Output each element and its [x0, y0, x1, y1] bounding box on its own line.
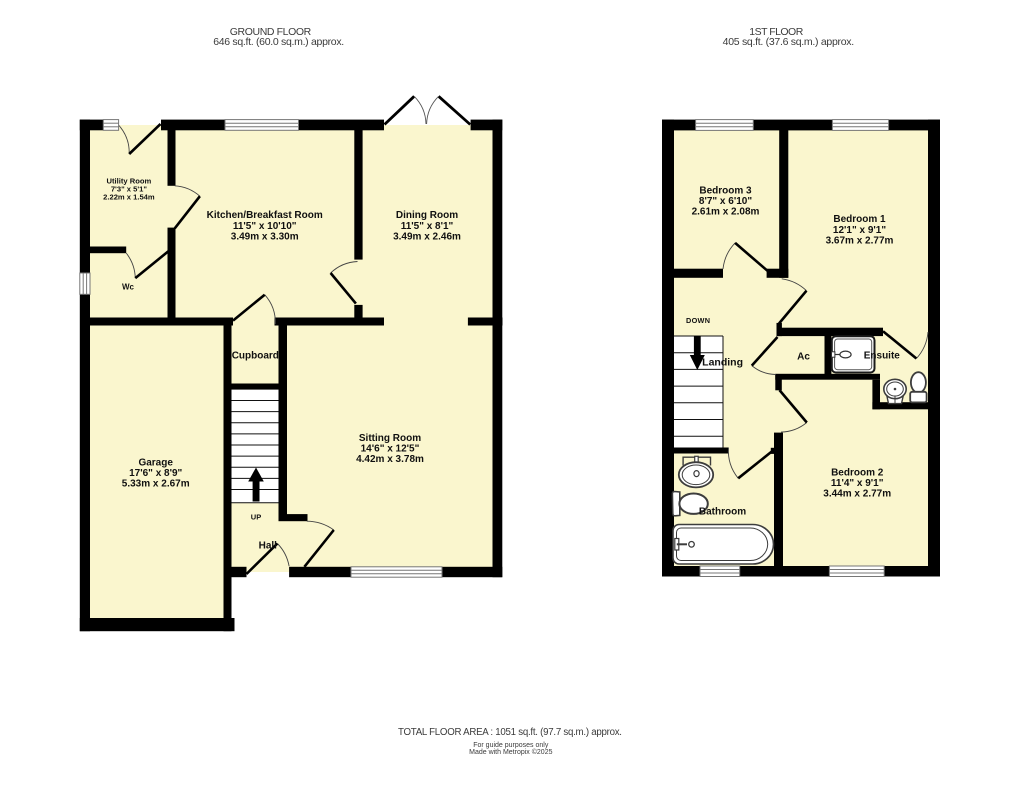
svg-text:UP: UP [251, 512, 261, 521]
svg-text:2.61m x 2.08m: 2.61m x 2.08m [692, 207, 760, 218]
svg-text:Ensuite: Ensuite [864, 350, 901, 361]
svg-text:17'6" x 8'9": 17'6" x 8'9" [129, 468, 182, 479]
svg-text:Ac: Ac [797, 351, 810, 362]
svg-text:Bedroom 3: Bedroom 3 [699, 185, 752, 196]
svg-text:Wc: Wc [122, 282, 135, 291]
svg-text:Sitting Room: Sitting Room [359, 433, 421, 444]
svg-text:8'7" x 6'10": 8'7" x 6'10" [699, 196, 752, 207]
svg-text:Hall: Hall [259, 541, 278, 552]
svg-text:Garage: Garage [138, 457, 173, 468]
svg-text:4.42m x 3.78m: 4.42m x 3.78m [356, 454, 424, 465]
svg-text:Cupboard: Cupboard [232, 351, 279, 362]
svg-text:3.49m x 3.30m: 3.49m x 3.30m [231, 231, 299, 242]
svg-text:Kitchen/Breakfast Room: Kitchen/Breakfast Room [207, 210, 323, 221]
svg-text:Bathroom: Bathroom [699, 506, 746, 517]
svg-text:Bedroom 2: Bedroom 2 [831, 468, 884, 479]
svg-text:14'6" x 12'5": 14'6" x 12'5" [361, 444, 420, 455]
svg-text:12'1" x 9'1": 12'1" x 9'1" [833, 225, 886, 236]
svg-text:Bedroom 1: Bedroom 1 [833, 214, 886, 225]
svg-text:3.44m x 2.77m: 3.44m x 2.77m [823, 489, 891, 500]
svg-text:646 sq.ft. (60.0 sq.m.) approx: 646 sq.ft. (60.0 sq.m.) approx. [213, 36, 344, 48]
svg-text:TOTAL FLOOR AREA : 1051 sq.ft.: TOTAL FLOOR AREA : 1051 sq.ft. (97.7 sq.… [398, 727, 622, 738]
svg-text:405 sq.ft. (37.6 sq.m.) approx: 405 sq.ft. (37.6 sq.m.) approx. [723, 36, 855, 48]
svg-text:11'5" x 10'10": 11'5" x 10'10" [233, 221, 297, 232]
svg-text:3.67m x 2.77m: 3.67m x 2.77m [826, 235, 894, 246]
svg-text:For guide purposes only: For guide purposes only [473, 742, 549, 749]
svg-text:DOWN: DOWN [686, 316, 710, 325]
svg-text:3.49m x 2.46m: 3.49m x 2.46m [393, 231, 461, 242]
svg-text:5.33m x 2.67m: 5.33m x 2.67m [122, 479, 190, 490]
svg-text:Dining Room: Dining Room [396, 210, 458, 221]
svg-text:2.22m x 1.54m: 2.22m x 1.54m [103, 192, 155, 201]
svg-text:Made with Metropix ©2025: Made with Metropix ©2025 [469, 748, 552, 756]
svg-text:11'5" x 8'1": 11'5" x 8'1" [401, 221, 454, 232]
svg-text:11'4" x 9'1": 11'4" x 9'1" [831, 478, 884, 489]
svg-text:Landing: Landing [702, 357, 743, 369]
